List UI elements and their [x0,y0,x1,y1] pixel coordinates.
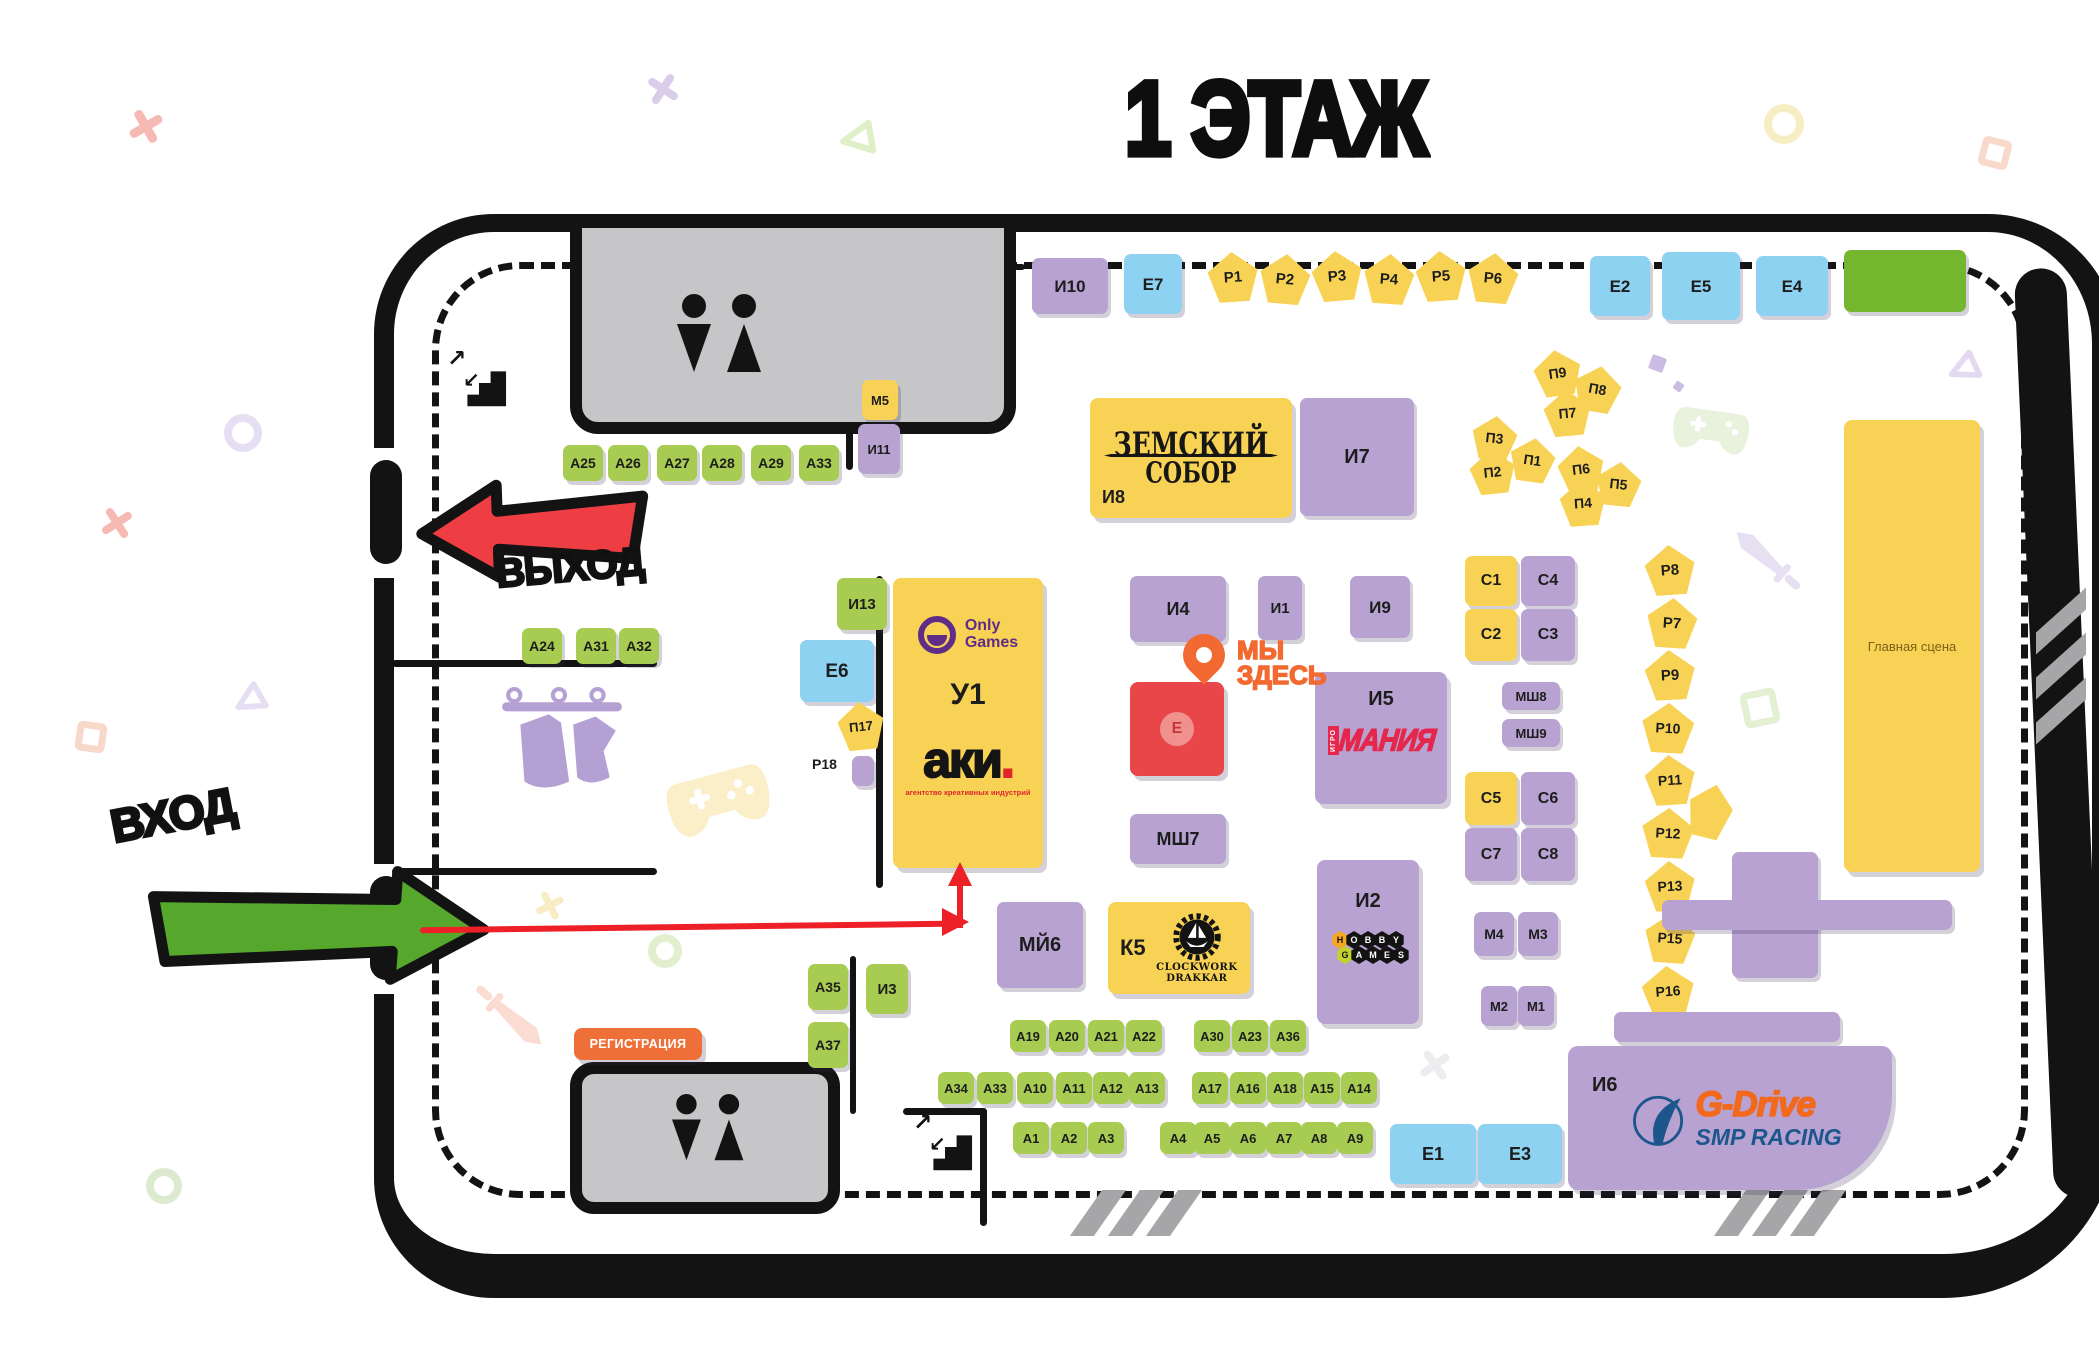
booth-i10: И10 [1032,258,1108,314]
booth-a17: А17 [1192,1072,1228,1104]
booth-c2: С2 [1465,609,1517,661]
booth-id-label: К5 [1120,935,1146,961]
booth-green-block [1844,250,1966,312]
booth-a21: А21 [1088,1020,1124,1052]
booth-a14: А14 [1341,1072,1377,1104]
booth-e2: Е2 [1590,256,1650,316]
booth-a32: А32 [619,628,659,664]
hex-letter: E [1379,946,1395,964]
booth-i6-gdrive: И6 G-Drive SMP RACING [1568,1046,1892,1190]
booth-i9: И9 [1350,576,1410,638]
booth-a10: А10 [1017,1072,1053,1104]
booth-a24: А24 [522,628,562,664]
booth-a33t: А33 [799,445,839,481]
clockwork-drakkar-logo: CLOCKWORKDRAKKAR [1152,912,1242,984]
only-games-icon [918,616,956,654]
decor-ring-icon [224,414,262,452]
booth-a20: А20 [1049,1020,1085,1052]
restroom-bottom [570,1062,840,1214]
booth-a6: А6 [1230,1122,1266,1154]
we-are-here-label: МЫ ЗДЕСЬ [1237,638,1327,687]
booth-a30: А30 [1194,1020,1230,1052]
booth-e6: Е6 [800,640,874,702]
decor-ring-icon [1764,104,1804,144]
wall-segment [980,1108,987,1226]
booth-a37: А37 [808,1022,848,1068]
sword-line-icon [1104,454,1278,457]
decor-sq-icon [74,720,108,754]
booth-c1: С1 [1465,556,1517,606]
booth-m5: М5 [862,380,898,420]
entrance-arrow-icon [137,840,494,1006]
free-label: Р18 [812,756,837,772]
booth-id-label: И8 [1102,487,1125,508]
booth-a3: А3 [1088,1122,1124,1154]
booth-id-label: И5 [1368,688,1394,711]
booth-msh8: МШ8 [1502,682,1560,710]
booth-e1: Е1 [1390,1124,1476,1184]
booth-c5: С5 [1465,772,1517,825]
booth-a29: А29 [751,445,791,481]
booth-e5: Е5 [1662,252,1740,320]
booth-m2: М2 [1481,986,1517,1026]
decor-sq-icon [1977,135,2013,171]
gear-ship-icon [1172,912,1222,962]
booth-u1-only-games: Only Games У1 аки. агентство креативных … [893,578,1043,868]
hobby-games-logo: HOBBY GAMES [1328,931,1408,964]
booth-a5: А5 [1194,1122,1230,1154]
booth-bar2 [1614,1012,1840,1042]
booth-a33b: А33 [977,1072,1013,1104]
booth-a2: А2 [1051,1122,1087,1154]
booth-r18b [852,756,874,786]
restroom-top [570,216,1016,434]
booth-c8: С8 [1521,828,1575,881]
booth-i4: И4 [1130,576,1226,642]
booth-id-label: И2 [1355,890,1381,913]
stairs-icon: ↗↙ [450,354,508,412]
falcon-icon [1626,1085,1692,1151]
booth-msh7: МШ7 [1130,814,1226,864]
page-title: 1 ЭТАЖ [1045,58,1505,179]
booth-i2-hobby-games: И2 HOBBY GAMES [1317,860,1419,1024]
booth-m1: М1 [1518,986,1554,1026]
booth-a18: А18 [1267,1072,1303,1104]
booth-i8-zemsky-sobor: ЗЕМСКИЙ СОБОР И8 [1090,398,1292,518]
booth-a1: А1 [1013,1122,1049,1154]
decor-x-icon [643,69,683,109]
booth-a12: А12 [1093,1072,1129,1104]
only-games-logo: Only Games [918,616,1018,654]
hex-letter: M [1365,946,1381,964]
booth-a35: А35 [808,964,848,1010]
aki-logo: аки. [923,740,1012,780]
route-arrow-up-icon [948,862,972,886]
booth-c4: С4 [1521,556,1575,606]
booth-m3: М3 [1518,912,1558,956]
exit-door-marker [370,460,402,564]
booth-e-red: Е [1130,682,1224,776]
entrance-label: ВХОД [106,777,239,854]
wall-segment [850,956,856,1114]
booth-bar1 [1662,900,1952,930]
booth-a27: А27 [657,445,697,481]
booth-i7: И7 [1300,398,1414,516]
booth-a15: А15 [1304,1072,1340,1104]
stairs-icon: ↗↙ [916,1118,974,1176]
booth-a28: А28 [702,445,742,481]
booth-a36: А36 [1270,1020,1306,1052]
booth-c7: С7 [1465,828,1517,881]
route-arrow-right-icon [942,908,969,936]
route-line-vertical [957,884,963,928]
wc-woman-icon [677,294,711,374]
booth-a4: А4 [1160,1122,1196,1154]
wc-woman-icon [672,1094,701,1162]
booth-i3: И3 [866,964,908,1014]
booth-e3: Е3 [1478,1124,1562,1184]
booth-a16: А16 [1230,1072,1266,1104]
aki-subtitle: агентство креативных индустрий [906,788,1031,797]
registration-sign: РЕГИСТРАЦИЯ [574,1028,702,1060]
hex-letter: G [1337,946,1353,964]
booth-id-label: У1 [950,678,985,712]
booth-i1: И1 [1258,576,1302,640]
booth-a23: А23 [1232,1020,1268,1052]
booth-a13: А13 [1129,1072,1165,1104]
booth-a22: А22 [1126,1020,1162,1052]
hex-letter: A [1351,946,1367,964]
booth-a34: А34 [938,1072,974,1104]
booth-c6: С6 [1521,772,1575,825]
wc-man-icon [715,1094,744,1162]
booth-a31: А31 [576,628,616,664]
booth-e7: Е7 [1124,254,1182,314]
booth-k5-clockwork-drakkar: К5 CLOCKWORKDRAKKAR [1108,902,1250,994]
zemsky-sobor-logo: ЗЕМСКИЙ СОБОР [1114,429,1269,487]
only-games-text: Only [965,617,1001,634]
gdrive-logo: G-Drive SMP RACING [1626,1085,1842,1151]
booth-i5-igromania: И5 ИГРО МАНИЯ [1315,672,1447,804]
booth-i13: И13 [837,578,887,630]
booth-a7: А7 [1266,1122,1302,1154]
booth-m4: М4 [1474,912,1514,956]
booth-i11: И11 [858,424,900,474]
wc-man-icon [727,294,761,374]
booth-msh9: МШ9 [1502,719,1560,747]
booth-a19: А19 [1010,1020,1046,1052]
decor-x-icon [124,104,168,148]
main-stage: Главная сцена [1844,420,1980,872]
booth-a9: А9 [1337,1122,1373,1154]
booth-c3: С3 [1521,609,1575,661]
decor-x-icon [97,503,137,543]
booth-e4: Е4 [1756,256,1828,316]
hex-letter: S [1393,946,1409,964]
booth-id-label: И6 [1592,1074,1618,1097]
igromania-logo: ИГРО МАНИЯ [1328,725,1435,756]
booth-id-label: Е [1160,712,1194,746]
decor-tri-icon [835,117,879,161]
decor-ring-icon [146,1168,182,1204]
booth-a8: А8 [1301,1122,1337,1154]
booth-mii6: МЙ6 [997,902,1083,988]
floor-map: 1 ЭТАЖ ↗↙ ↗↙ [0,0,2099,1358]
booth-a11: А11 [1056,1072,1092,1104]
decor-tri-icon [226,678,272,724]
